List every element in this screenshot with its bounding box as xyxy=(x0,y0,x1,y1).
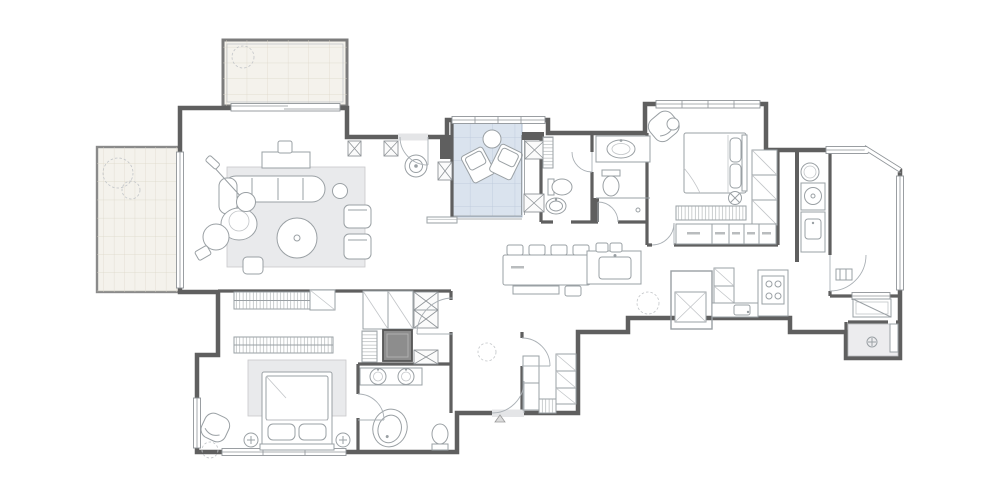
floor-plan-page xyxy=(0,0,1000,500)
door-panel xyxy=(890,324,898,352)
pillow xyxy=(730,164,741,188)
terrace-left xyxy=(97,147,180,292)
headboard xyxy=(260,444,334,450)
stool xyxy=(596,243,608,252)
toilet-icon xyxy=(602,170,620,196)
utility-strip xyxy=(801,163,825,252)
armchair xyxy=(344,234,371,259)
armchair xyxy=(344,205,371,228)
stool xyxy=(610,243,622,252)
cabinet-column xyxy=(714,268,734,303)
patio-table xyxy=(483,130,501,148)
console-table xyxy=(262,152,310,168)
laundry-terrace xyxy=(848,299,898,356)
window xyxy=(452,117,545,124)
window xyxy=(852,293,890,300)
plant-icon xyxy=(478,343,496,361)
window xyxy=(177,152,184,288)
window xyxy=(231,104,340,112)
toilet-icon xyxy=(432,424,448,450)
coffee-table xyxy=(277,218,317,258)
wardrobe xyxy=(752,150,777,225)
chair xyxy=(565,286,581,296)
window xyxy=(826,147,868,154)
master-bedroom xyxy=(198,360,350,458)
shower-room xyxy=(848,324,898,356)
bench xyxy=(513,286,559,294)
nightstand xyxy=(336,433,350,447)
multipurpose-room xyxy=(836,269,852,280)
armchair xyxy=(198,410,233,445)
chair xyxy=(278,141,292,153)
master-bathroom xyxy=(360,291,448,451)
door-swing xyxy=(400,137,428,165)
kitchen xyxy=(587,243,788,329)
floor-plan-drawing xyxy=(0,0,1000,500)
pouf xyxy=(243,257,263,274)
bed xyxy=(684,133,747,193)
door-opening xyxy=(398,134,428,141)
washing-machine-icon xyxy=(801,183,825,210)
door-swing xyxy=(492,381,524,413)
bathtub xyxy=(368,405,412,452)
table-lamp-icon xyxy=(729,192,742,205)
window xyxy=(897,176,904,290)
double-vanity xyxy=(360,368,422,385)
bed xyxy=(260,372,334,450)
plant-icon xyxy=(637,292,659,314)
walk-in-closet xyxy=(234,290,335,353)
door-swing xyxy=(572,152,592,172)
pantry xyxy=(671,271,712,329)
living-room xyxy=(194,141,371,274)
bedroom-2 xyxy=(645,107,777,244)
balcony-top xyxy=(223,40,347,106)
window xyxy=(656,101,760,109)
door-swing xyxy=(652,223,674,245)
dining-area xyxy=(503,245,590,296)
courtyard-patio xyxy=(452,122,523,219)
side-table xyxy=(667,118,679,130)
bathroom-2 xyxy=(596,136,650,212)
chair xyxy=(507,245,523,255)
window xyxy=(865,146,901,174)
window xyxy=(194,398,201,448)
side-table xyxy=(333,184,348,199)
chair xyxy=(551,245,567,255)
door-swing xyxy=(598,202,618,222)
nightstand xyxy=(244,433,258,447)
pillow xyxy=(730,138,741,162)
closet xyxy=(556,354,576,404)
chair xyxy=(529,245,545,255)
vanity xyxy=(543,137,553,168)
meter-box-icon xyxy=(836,269,852,280)
bathroom-1 xyxy=(543,137,572,214)
shoe-cabinet xyxy=(523,356,539,410)
cooktop-icon xyxy=(758,270,788,316)
cabinet-row xyxy=(676,224,776,244)
entrance-door-opening xyxy=(492,410,524,418)
pillow xyxy=(299,424,326,440)
toilet-icon xyxy=(548,179,572,195)
dining-table xyxy=(503,255,590,285)
floor-drain-icon xyxy=(636,208,640,212)
pillow xyxy=(268,424,295,440)
